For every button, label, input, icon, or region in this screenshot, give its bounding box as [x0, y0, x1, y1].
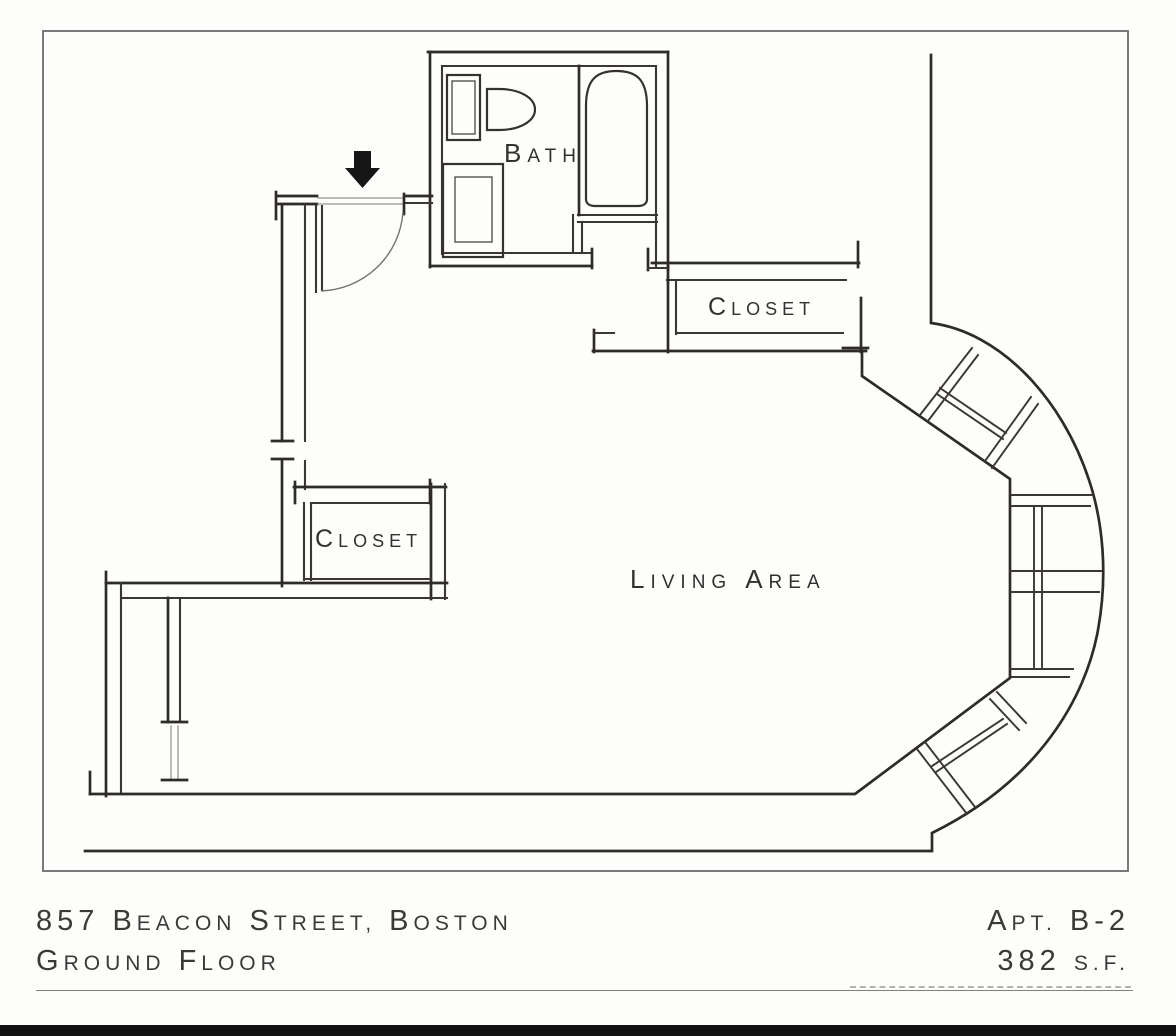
perimeter-inner-wall: [90, 352, 1010, 794]
perimeter-outer-wall: [85, 55, 1103, 851]
room-label-upper-closet: CLOSET: [708, 293, 815, 322]
room-label-living-area: LIVINGAREA: [630, 564, 826, 595]
bathroom-sink: [443, 164, 503, 257]
floorplan-sheet: BATH CLOSET CLOSET LIVINGAREA 857 BEACON…: [0, 0, 1176, 1036]
bathtub: [586, 71, 647, 206]
room-label-lower-closet: CLOSET: [315, 525, 422, 554]
footer-apartment-number: APT.B-2: [987, 905, 1130, 938]
bay-window-upper: [920, 348, 1038, 468]
entry-door: [276, 151, 432, 292]
lower-left-walls: [106, 572, 447, 796]
footer-floor-name: GROUNDFLOOR: [36, 945, 281, 978]
erased-text-dashes: [850, 986, 1131, 988]
floorplan-drawing: [0, 0, 1176, 1036]
entry-arrow-icon: [345, 151, 380, 188]
bay-window-middle: [1010, 495, 1101, 677]
bottom-black-bar: [0, 1025, 1176, 1036]
bay-window-lower: [917, 692, 1026, 814]
footer-address: 857 BEACONSTREET,BOSTON: [36, 905, 513, 938]
footer-rule: [36, 990, 1133, 991]
room-label-bath: BATH: [504, 138, 582, 169]
footer-square-footage: 382S.F.: [997, 945, 1130, 978]
left-wall: [272, 205, 305, 586]
toilet-bowl: [487, 89, 535, 130]
door-swing-arc: [321, 212, 403, 291]
